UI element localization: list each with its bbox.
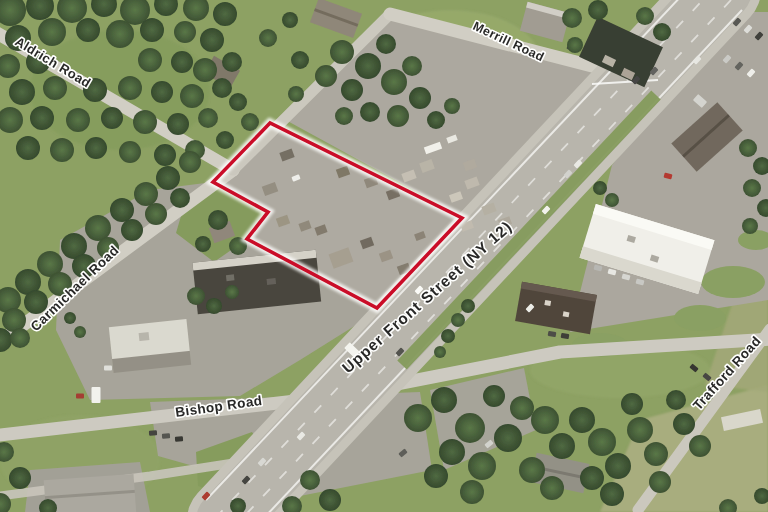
photo-lighting-overlay xyxy=(0,0,768,512)
aerial-map: Aldrich RoadMerrill RoadCarmichael RoadU… xyxy=(0,0,768,512)
aerial-photo: Aldrich RoadMerrill RoadCarmichael RoadU… xyxy=(0,0,768,512)
